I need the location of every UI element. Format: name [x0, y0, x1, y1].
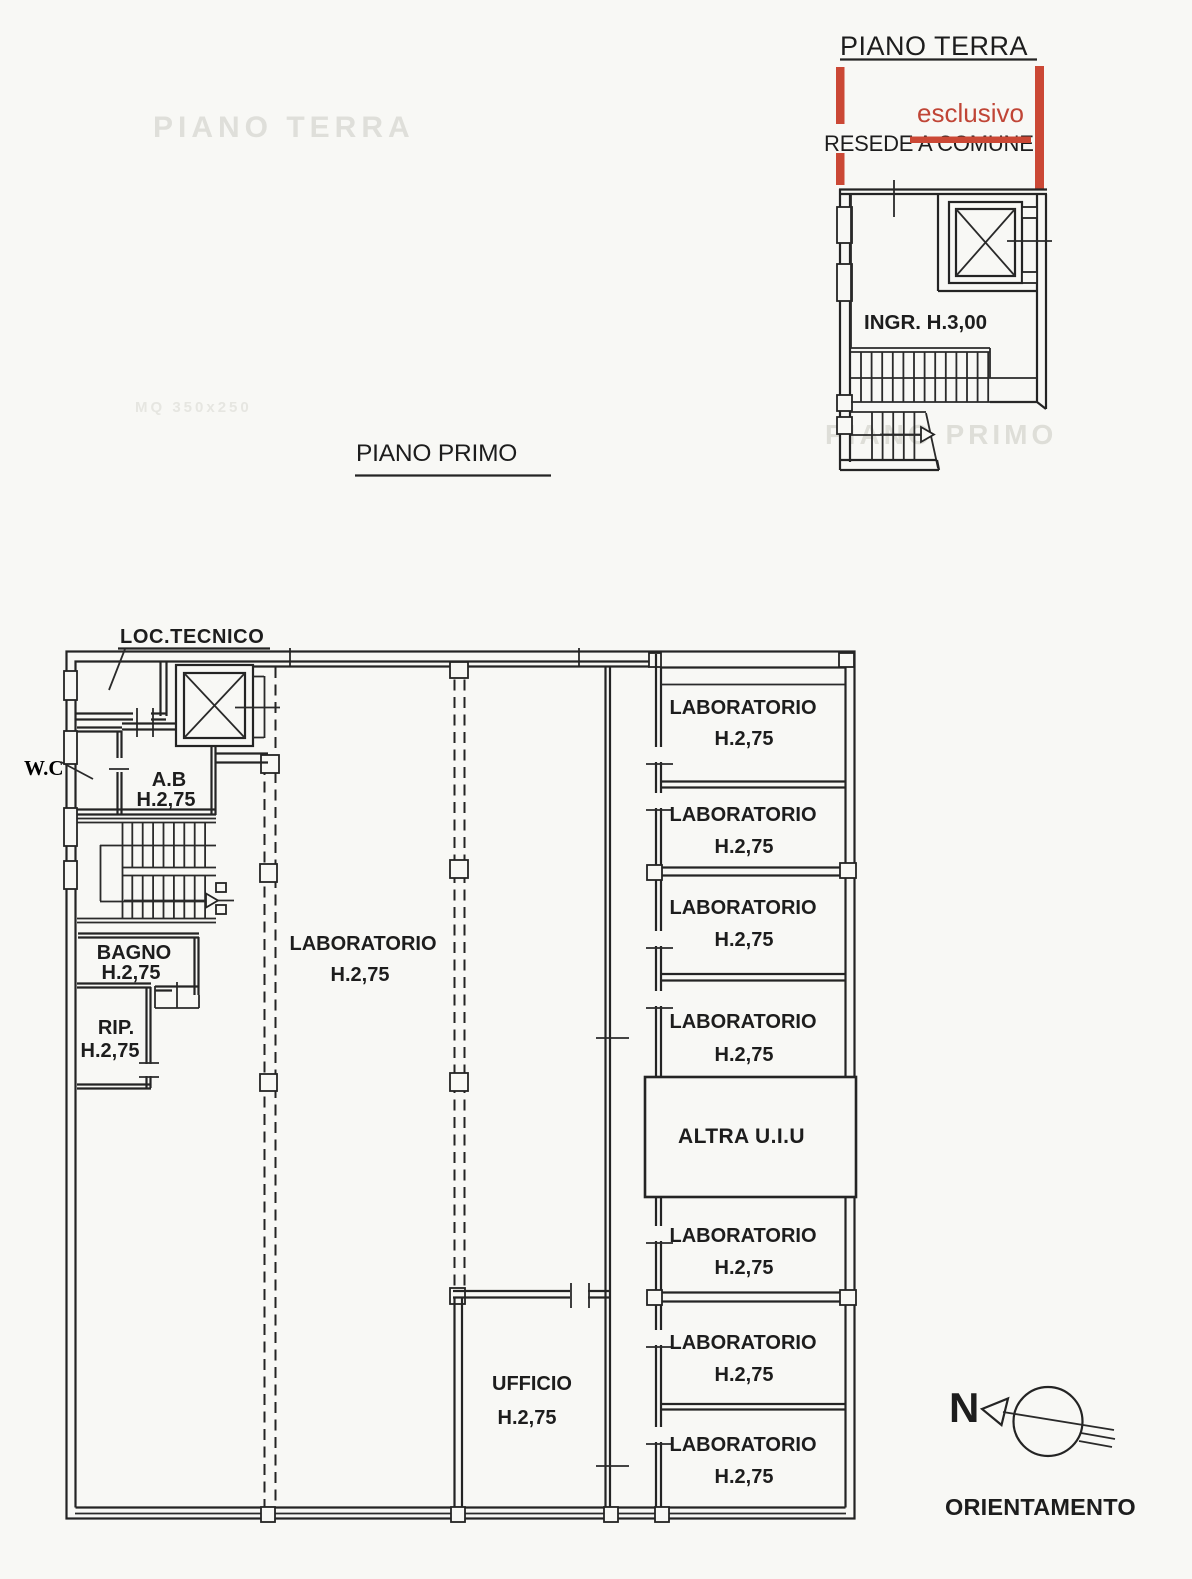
svg-text:H.2,75: H.2,75	[715, 929, 774, 951]
svg-text:INGR. H.3,00: INGR. H.3,00	[864, 311, 987, 334]
svg-text:LABORATORIO: LABORATORIO	[669, 1332, 816, 1354]
svg-text:RIP.: RIP.	[98, 1017, 134, 1039]
svg-text:H.2,75: H.2,75	[715, 1466, 774, 1488]
svg-text:UFFICIO: UFFICIO	[492, 1373, 572, 1395]
svg-text:LABORATORIO: LABORATORIO	[669, 1434, 816, 1456]
svg-text:MQ 350x250: MQ 350x250	[135, 399, 252, 416]
svg-text:H.2,75: H.2,75	[715, 1044, 774, 1066]
svg-text:H.2,75: H.2,75	[331, 964, 390, 986]
svg-text:W.C: W.C	[24, 756, 64, 780]
svg-text:N: N	[949, 1384, 979, 1431]
svg-text:PIANO TERRA: PIANO TERRA	[153, 111, 415, 144]
svg-text:esclusivo: esclusivo	[917, 98, 1024, 128]
svg-text:ORIENTAMENTO: ORIENTAMENTO	[945, 1494, 1136, 1520]
svg-text:LABORATORIO: LABORATORIO	[669, 1011, 816, 1033]
svg-text:H.2,75: H.2,75	[102, 962, 161, 984]
svg-text:H.2,75: H.2,75	[81, 1040, 140, 1062]
svg-text:H.2,75: H.2,75	[715, 836, 774, 858]
svg-text:LABORATORIO: LABORATORIO	[669, 897, 816, 919]
svg-text:A.B: A.B	[152, 769, 186, 791]
svg-text:LABORATORIO: LABORATORIO	[669, 1225, 816, 1247]
svg-text:BAGNO: BAGNO	[97, 942, 171, 964]
svg-text:PIANO TERRA: PIANO TERRA	[840, 31, 1028, 61]
svg-text:H.2,75: H.2,75	[498, 1407, 557, 1429]
svg-text:RESEDE A COMUNE: RESEDE A COMUNE	[824, 131, 1034, 156]
svg-text:H.2,75: H.2,75	[715, 728, 774, 750]
svg-text:H.2,75: H.2,75	[715, 1257, 774, 1279]
svg-text:H.2,75: H.2,75	[137, 789, 196, 811]
svg-text:PIANO PRIMO: PIANO PRIMO	[356, 440, 517, 467]
svg-text:LABORATORIO: LABORATORIO	[669, 697, 816, 719]
svg-text:H.2,75: H.2,75	[715, 1364, 774, 1386]
svg-text:LABORATORIO: LABORATORIO	[669, 804, 816, 826]
svg-text:LOC.TECNICO: LOC.TECNICO	[120, 626, 264, 648]
svg-text:ALTRA U.I.U: ALTRA U.I.U	[678, 1125, 805, 1148]
svg-text:LABORATORIO: LABORATORIO	[289, 933, 436, 955]
